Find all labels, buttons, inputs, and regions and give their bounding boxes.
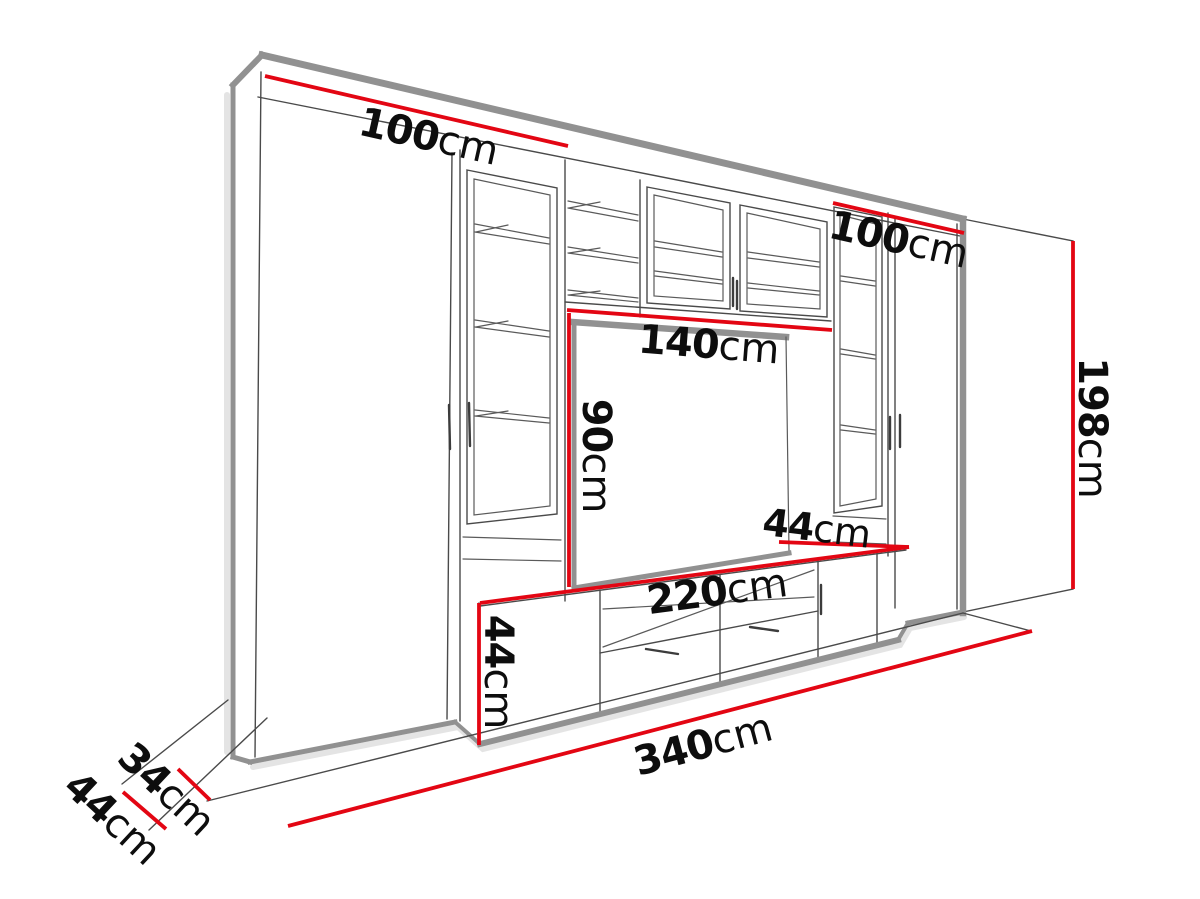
- wardrobe-door-handle: [449, 405, 450, 449]
- furniture-dimension-diagram: 100cm 100cm 140cm 90cm 44cm 220cm 44cm 1…: [0, 0, 1200, 899]
- right-side-panel: [963, 219, 1073, 612]
- label-tv-stand-height: 44cm: [475, 615, 521, 730]
- label-niche-height: 90cm: [573, 399, 619, 514]
- label-total-height: 198cm: [1069, 357, 1115, 498]
- display-door-handle: [469, 403, 470, 446]
- wall-unit-drawing: 100cm 100cm 140cm 90cm 44cm 220cm 44cm 1…: [0, 0, 1200, 899]
- unit-body: [250, 66, 1073, 763]
